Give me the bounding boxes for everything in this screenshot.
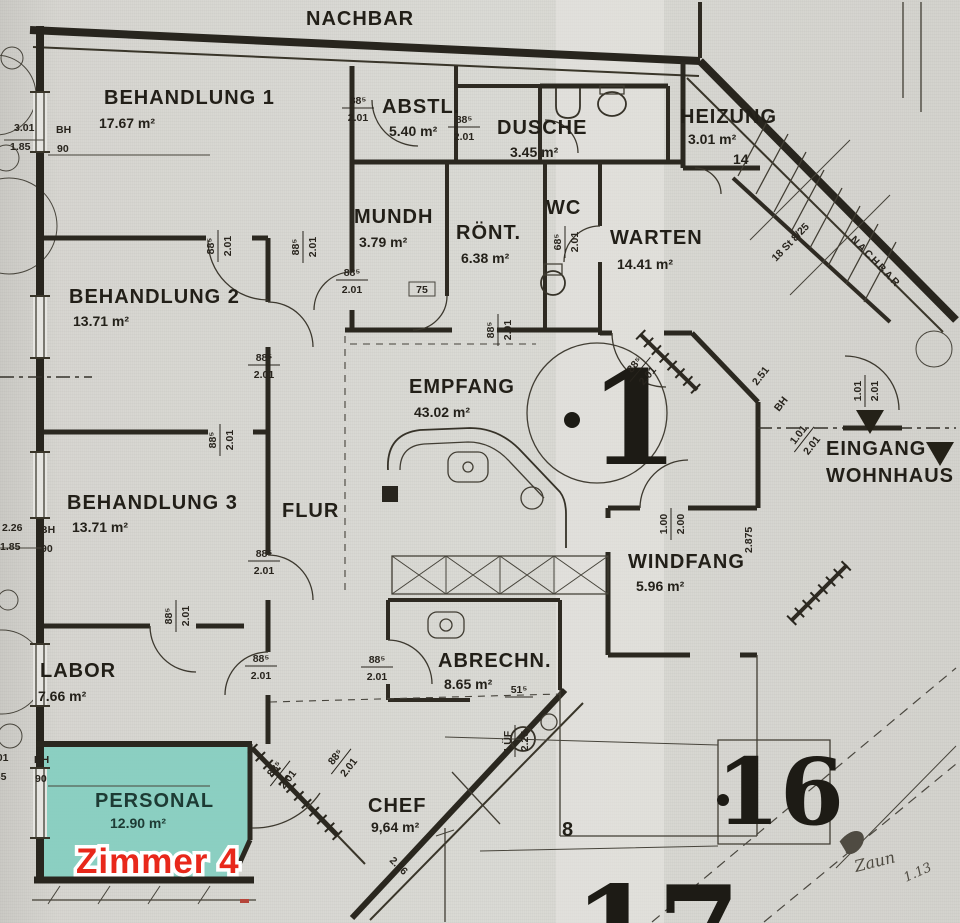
dim-door-small: 68⁵ <box>552 234 564 251</box>
plot-1-dot <box>564 412 580 428</box>
dim-door: 88⁵ <box>369 654 386 666</box>
svg-text:1.85: 1.85 <box>10 141 31 153</box>
room-area-heizung: 3.01 m² <box>688 131 737 147</box>
dim-door: 88⁵ <box>344 267 361 279</box>
handwriting: Zaun 1.13 <box>851 847 934 885</box>
dim-door: 88⁵ <box>290 239 302 256</box>
svg-text:2.01: 2.01 <box>502 320 514 341</box>
room-area-abstell: 5.40 m² <box>389 123 438 139</box>
svg-text:2.01: 2.01 <box>251 670 272 682</box>
svg-text:1.85: 1.85 <box>0 771 7 783</box>
svg-text:BH: BH <box>40 524 55 536</box>
door-arcs <box>150 100 899 828</box>
svg-text:2.01: 2.01 <box>454 131 475 143</box>
heizung-sub-number: 14 <box>733 151 749 167</box>
room-area-behandlung1: 17.67 m² <box>99 115 155 131</box>
svg-text:2.01: 2.01 <box>869 381 881 402</box>
svg-text:2.01: 2.01 <box>307 237 319 258</box>
dim-windfang: 1.00 <box>658 514 670 535</box>
svg-text:BH: BH <box>56 124 71 136</box>
handwriting-zaun: Zaun <box>851 847 897 876</box>
dim-door: 88⁵ <box>256 352 273 364</box>
room-area-chef: 9,64 m² <box>371 819 420 835</box>
room-label-abrechnung: ABRECHN. <box>438 650 552 672</box>
room-area-dusche: 3.45 m² <box>510 144 559 160</box>
room-number-8: 8 <box>562 819 574 841</box>
room-area-mundh: 3.79 m² <box>359 234 408 250</box>
room-label-dusche: DUSCHE <box>497 117 587 139</box>
svg-text:1.85: 1.85 <box>0 541 21 553</box>
room-area-empfang: 43.02 m² <box>414 404 470 420</box>
dim-75: 75 <box>416 284 428 296</box>
label-nachbar-top: NACHBAR <box>306 8 414 30</box>
dim-vent: LÜF <box>501 730 514 751</box>
svg-text:BH: BH <box>34 754 49 766</box>
room-area-behandlung3: 13.71 m² <box>72 519 128 535</box>
dim-depth-2875: 2.875 <box>743 527 755 553</box>
dim-window-2: 2.261.85 BH90 <box>0 522 55 555</box>
svg-text:2.00: 2.00 <box>675 514 687 535</box>
room-label-personal: PERSONAL <box>95 790 214 812</box>
svg-text:3.01: 3.01 <box>0 752 9 764</box>
room-label-chef: CHEF <box>368 795 426 817</box>
dim-bh: BH <box>772 395 791 414</box>
room-label-warten: WARTEN <box>610 227 703 249</box>
svg-text:2.25: 2.25 <box>519 731 531 752</box>
room-label-flur: FLUR <box>282 500 339 522</box>
floor-plan-drawing: BEHANDLUNG 1 17.67 m² ABSTL. 5.40 m² DUS… <box>0 0 960 923</box>
room-label-mundh: MUNDH <box>354 206 433 228</box>
svg-text:2.01: 2.01 <box>254 565 275 577</box>
room-area-warten: 14.41 m² <box>617 256 673 272</box>
svg-text:2.01: 2.01 <box>348 112 369 124</box>
svg-text:2.01: 2.01 <box>180 606 192 627</box>
stool <box>521 487 543 509</box>
svg-text:2.01: 2.01 <box>254 369 275 381</box>
room-label-labor: LABOR <box>40 660 116 682</box>
room-area-personal: 12.90 m² <box>110 815 166 831</box>
room-label-behandlung3: BEHANDLUNG 3 <box>67 492 238 514</box>
svg-text:2.01: 2.01 <box>367 671 388 683</box>
dim-entrance: 1.01 <box>852 381 864 402</box>
floor-plan-scan: BEHANDLUNG 1 17.67 m² ABSTL. 5.40 m² DUS… <box>0 0 960 923</box>
dim-door: 88⁵ <box>326 747 346 768</box>
dim-door: 88⁵ <box>256 548 273 560</box>
svg-text:2.26: 2.26 <box>2 522 23 534</box>
room-area-labor: 7.66 m² <box>38 688 87 704</box>
label-eingang-line2: WOHNHAUS <box>826 465 954 487</box>
room-label-behandlung1: BEHANDLUNG 1 <box>104 87 275 109</box>
svg-text:90: 90 <box>35 773 47 785</box>
room-labels: BEHANDLUNG 1 17.67 m² ABSTL. 5.40 m² DUS… <box>38 8 954 835</box>
handwriting-113: 1.13 <box>902 860 935 885</box>
entrance-triangle-2 <box>926 442 954 466</box>
room-label-roentgen: RÖNT. <box>456 221 521 244</box>
svg-text:90: 90 <box>57 143 69 155</box>
svg-text:2.01: 2.01 <box>342 284 363 296</box>
label-eingang-line1: EINGANG <box>826 438 926 460</box>
dim-door: 88⁵ <box>207 432 219 449</box>
wall-post <box>382 486 398 502</box>
room-label-abstell: ABSTL. <box>382 96 460 118</box>
red-survey-tick <box>240 899 249 903</box>
abrechn-sink <box>428 612 464 638</box>
dim-door: 88⁵ <box>456 114 473 126</box>
svg-text:2.01: 2.01 <box>222 236 234 257</box>
room-area-roentgen: 6.38 m² <box>461 250 510 266</box>
room-area-windfang: 5.96 m² <box>636 578 685 594</box>
dim-door: 88⁵ <box>253 653 270 665</box>
svg-text:90: 90 <box>41 543 53 555</box>
plot-number-17: 17 <box>574 860 741 923</box>
dim-door: 88⁵ <box>205 238 217 255</box>
dim-door: 88⁵ <box>163 608 175 625</box>
room-label-windfang: WINDFANG <box>628 551 745 573</box>
svg-text:3.01: 3.01 <box>14 122 35 134</box>
svg-text:2.01: 2.01 <box>224 430 236 451</box>
svg-text:2.01: 2.01 <box>569 232 581 253</box>
highlight-label-zimmer4: Zimmer 4 <box>76 842 240 881</box>
room-area-behandlung2: 13.71 m² <box>73 313 129 329</box>
room-area-abrechnung: 8.65 m² <box>444 676 493 692</box>
room-label-behandlung2: BEHANDLUNG 2 <box>69 286 240 308</box>
dim-ent-length: 2.51 <box>750 364 772 388</box>
room-label-empfang: EMPFANG <box>409 376 515 398</box>
dim-door: 88⁵ <box>350 95 367 107</box>
dim-shelf: 51⁵ <box>511 684 528 696</box>
counter-sink <box>448 452 488 482</box>
dim-door: 88⁵ <box>485 322 497 339</box>
plot-number-16: 16 <box>716 738 844 846</box>
room-label-heizung: HEIZUNG <box>680 106 777 128</box>
room-label-wc: WC <box>546 197 581 219</box>
